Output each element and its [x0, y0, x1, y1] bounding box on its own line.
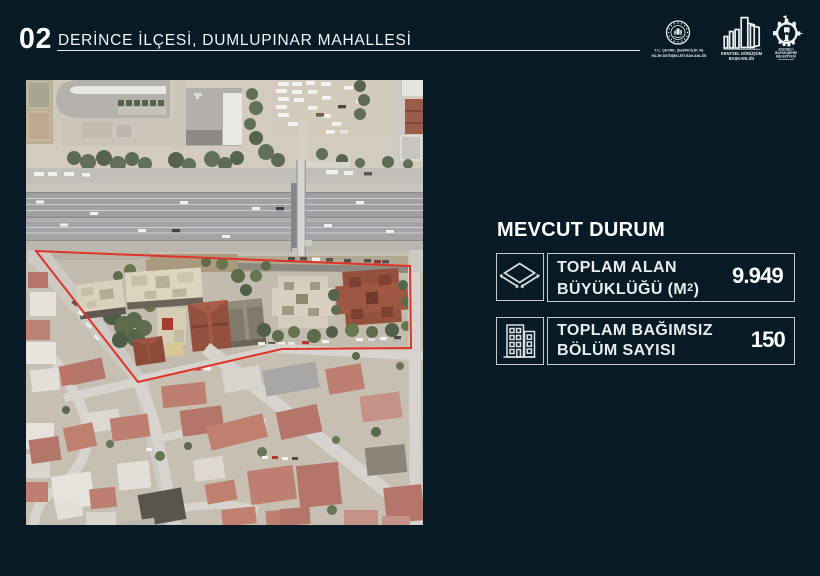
svg-text:BAŞKANLIĞI: BAŞKANLIĞI	[729, 56, 754, 61]
svg-text:BELEDİYESİ: BELEDİYESİ	[776, 55, 796, 59]
svg-text:İKLİM DEĞİŞİKLİĞİ BAKANLIĞI: İKLİM DEĞİŞİKLİĞİ BAKANLIĞI	[652, 53, 707, 58]
svg-text:T.C. ÇEVRE, ŞEHİRCİLİK VE: T.C. ÇEVRE, ŞEHİRCİLİK VE	[654, 47, 704, 52]
